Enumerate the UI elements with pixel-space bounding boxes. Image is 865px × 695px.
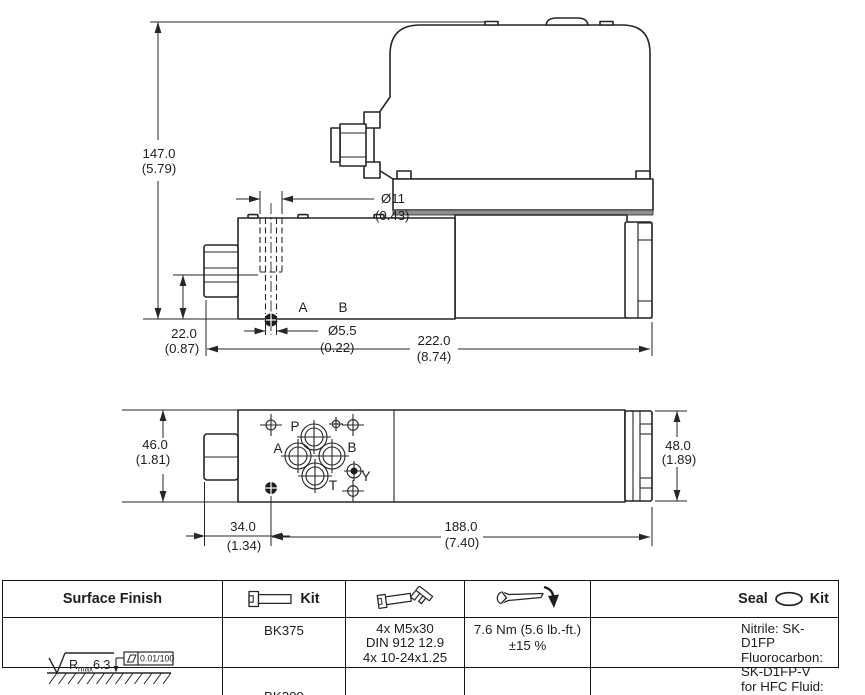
hex-nut-bottom — [204, 434, 238, 480]
dim-text: (1.81) — [136, 452, 170, 467]
port-y-label: Y — [361, 469, 370, 484]
seal-kit-line: Nitrile: SK-D1FP — [741, 622, 838, 651]
dim-text: (7.40) — [445, 535, 479, 550]
dim-text: (0.22) — [320, 340, 354, 355]
dim-text: (1.34) — [227, 538, 261, 553]
housing-top-tab — [485, 22, 498, 26]
header-torque — [465, 581, 591, 618]
bolt-spec-line: 4x 10-24x1.25 — [363, 651, 447, 665]
torque-tolerance: ±15 % — [509, 638, 547, 654]
seal-kit-header-label: Kit — [810, 591, 829, 607]
dim-port-axis-22: 22.0 (0.87) — [165, 275, 199, 356]
datasheet-page: A B 147.0 (5.79) 22.0 (0.87) Ø11 (0.43) — [0, 0, 865, 695]
cell-bolt-kit: BK375 BK209 — [223, 618, 346, 695]
side-port-a-label: A — [298, 300, 307, 315]
cell-seal-kit: Nitrile: SK-D1FP Fluorocarbon: SK-D1FP-V… — [591, 618, 838, 695]
flange-tab — [636, 171, 650, 179]
end-cap-bottom — [625, 411, 652, 501]
spec-table: Surface Finish Kit — [2, 580, 839, 668]
surface-finish-symbol: R max 6.3 0.01/100 — [13, 640, 213, 686]
header-seal-kit: Seal Kit — [591, 581, 838, 618]
dim-end-width-48: 48.0 (1.89) — [655, 411, 696, 501]
flatness-value: 0.01/100 — [140, 654, 174, 664]
seal-kit-line: for HFC Fluid: SK-D1FP-H — [741, 680, 838, 695]
socket-screw-icon — [248, 590, 294, 608]
dim-length-188: 188.0 (7.40) — [272, 507, 652, 550]
header-bolt-kit: Kit — [223, 581, 346, 618]
dim-text: (1.89) — [662, 452, 696, 467]
side-view: A B 147.0 (5.79) 22.0 (0.87) Ø11 (0.43) — [142, 18, 653, 364]
dim-text: 222.0 — [417, 333, 450, 348]
rmax-r: R — [69, 658, 78, 672]
solenoid-tube — [455, 215, 627, 318]
seal-header-label: Seal — [738, 591, 768, 607]
dim-text: Ø5.5 — [328, 323, 357, 338]
dim-text: 34.0 — [230, 519, 256, 534]
dim-text: 147.0 — [142, 146, 175, 161]
port-t-label: T — [329, 478, 337, 493]
rmax-sub: max — [78, 665, 93, 674]
body-screw-bump — [298, 215, 308, 218]
end-cap-side — [625, 222, 652, 318]
torque-value: 7.6 Nm (5.6 lb.-ft.) — [474, 622, 581, 638]
dim-text: 188.0 — [444, 519, 477, 534]
flange-tab — [397, 171, 411, 179]
dim-text: 22.0 — [171, 326, 197, 341]
torque-wrench-icon — [494, 585, 562, 613]
dim-text: (8.74) — [417, 349, 451, 364]
cell-surface-finish: R max 6.3 0.01/100 — [3, 618, 223, 695]
header-surface-finish: Surface Finish — [3, 581, 223, 618]
valve-dimension-drawing: A B 147.0 (5.79) 22.0 (0.87) Ø11 (0.43) — [0, 0, 865, 575]
electronics-housing-outline — [374, 25, 650, 179]
body-screw-bump — [248, 215, 258, 218]
dim-text: 48.0 — [665, 438, 691, 453]
header-bolt-spec — [346, 581, 465, 618]
port-a-label: A — [273, 441, 282, 456]
hex-nut-side — [204, 245, 238, 297]
dim-text: (5.79) — [142, 161, 176, 176]
cell-torque: 7.6 Nm (5.6 lb.-ft.) ±15 % — [465, 618, 591, 695]
port-p-label: P — [290, 419, 299, 434]
seal-kit-line: Fluorocarbon: SK-D1FP-V — [741, 651, 838, 680]
dim-text: (0.43) — [375, 208, 409, 223]
surface-finish-header-label: Surface Finish — [63, 591, 162, 607]
rmax-value: 6.3 — [93, 658, 110, 672]
cell-bolt-spec: 4x M5x30 DIN 912 12.9 4x 10-24x1.25 — [346, 618, 465, 695]
bottom-view: P A B T Y 46.0 (1.81) 34.0 (1.34) — [122, 410, 696, 553]
housing-top-dome — [546, 18, 588, 25]
bolt-spec-line: 4x M5x30 — [376, 622, 434, 636]
solenoid-flange — [393, 179, 653, 210]
electrical-connector — [331, 112, 380, 178]
side-port-b-label: B — [338, 300, 347, 315]
bolt-spec-line: DIN 912 12.9 — [366, 636, 444, 650]
bolt-kit-header-label: Kit — [300, 591, 319, 607]
bolt-kit-value: BK209 — [264, 689, 304, 695]
bolt-kit-value: BK375 — [264, 623, 304, 638]
oring-icon — [774, 591, 804, 607]
housing-top-tab — [600, 22, 613, 26]
dim-text: (0.87) — [165, 341, 199, 356]
dim-text: 46.0 — [142, 437, 168, 452]
dim-text: Ø11 — [381, 191, 405, 206]
port-b-label: B — [347, 440, 356, 455]
screw-caliper-icon — [376, 586, 434, 612]
